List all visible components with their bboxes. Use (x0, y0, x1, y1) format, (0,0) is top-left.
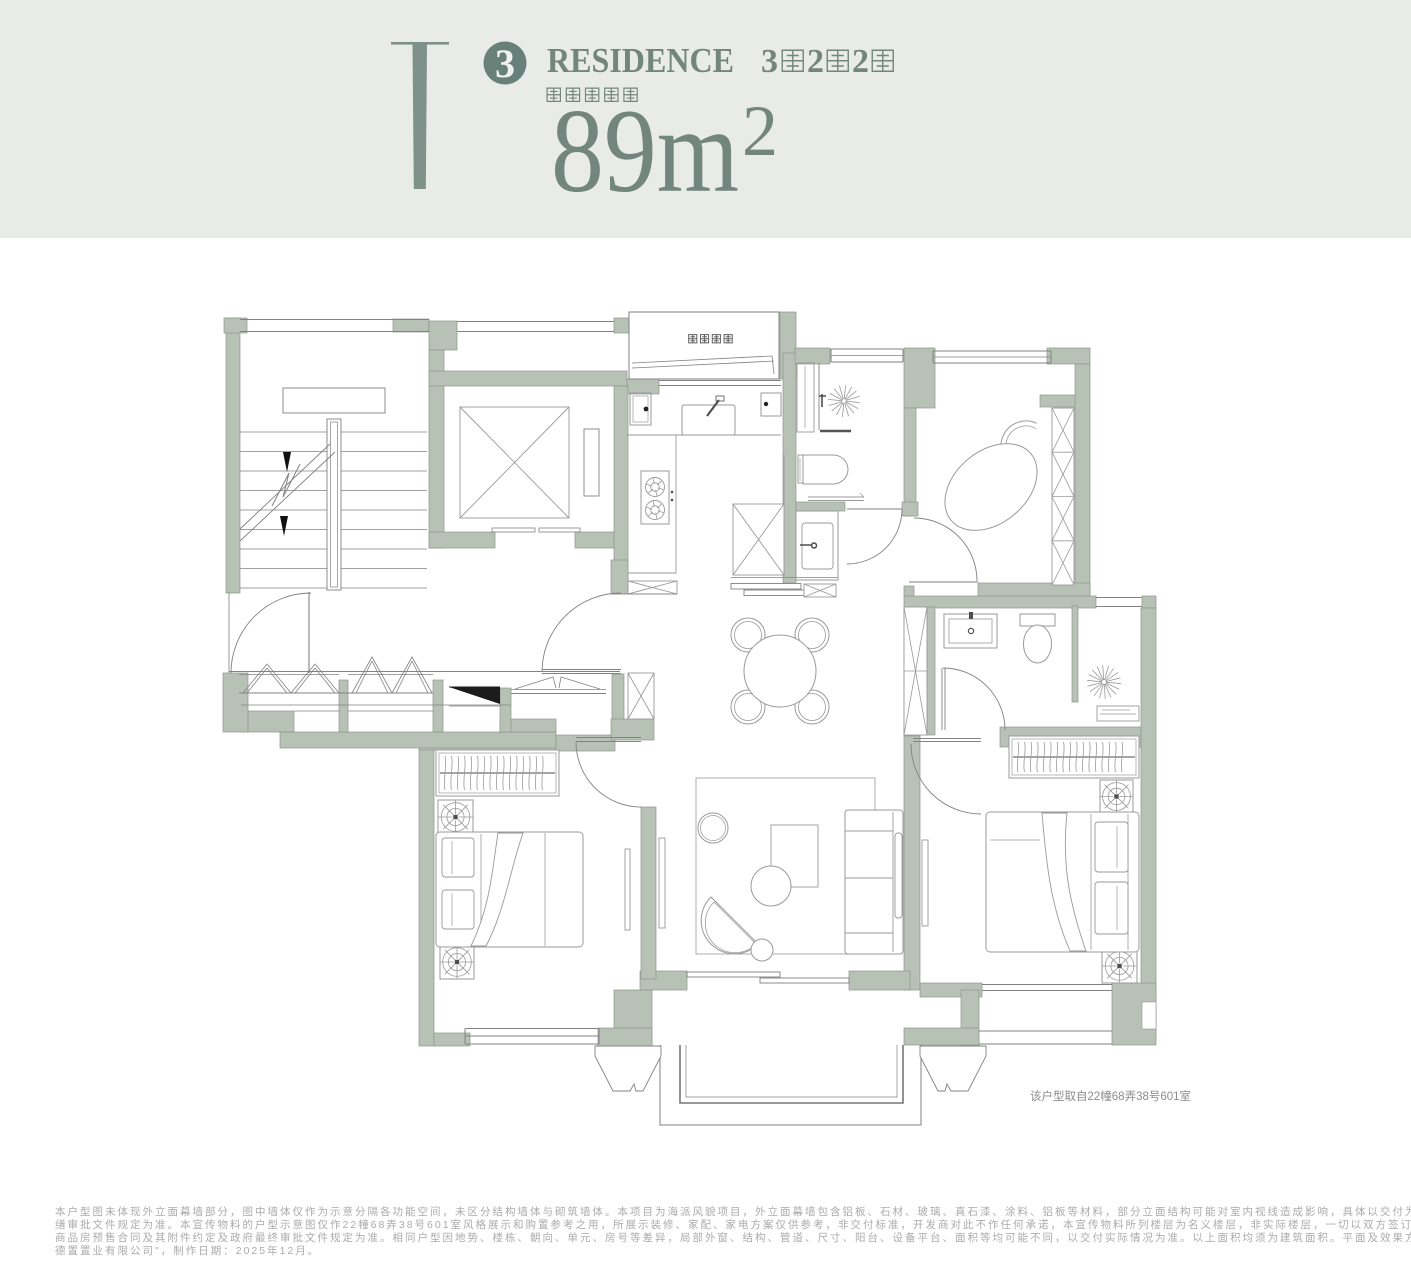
svg-text:3: 3 (495, 41, 515, 86)
svg-text:缮审批文件规定为准。本宣传物料的户型示意图仅作22幢68弄3: 缮审批文件规定为准。本宣传物料的户型示意图仅作22幢68弄38号601室风格展示… (55, 1218, 1411, 1231)
svg-text:2: 2 (807, 43, 824, 80)
svg-text:德置置业有限公司"，制作日期：2025年12月。: 德置置业有限公司"，制作日期：2025年12月。 (55, 1244, 320, 1257)
svg-text:89m: 89m (551, 84, 739, 217)
svg-text:商品房预售合同及其附件约定及政府最终审批文件规定为准。相同户: 商品房预售合同及其附件约定及政府最终审批文件规定为准。相同户型因地势、楼栋、朝向… (55, 1231, 1411, 1244)
svg-text:RESIDENCE: RESIDENCE (547, 41, 734, 80)
svg-text:2: 2 (852, 43, 869, 80)
svg-text:2: 2 (742, 91, 778, 171)
svg-text:该户型取自22幢68弄38号601室: 该户型取自22幢68弄38号601室 (1030, 1089, 1191, 1103)
svg-text:3: 3 (761, 43, 778, 80)
svg-text:本户型图未体现外立面幕墙部分，图中墙体仅作为示意分隔各功能空: 本户型图未体现外立面幕墙部分，图中墙体仅作为示意分隔各功能空间，未区分结构墙体与… (55, 1205, 1411, 1218)
